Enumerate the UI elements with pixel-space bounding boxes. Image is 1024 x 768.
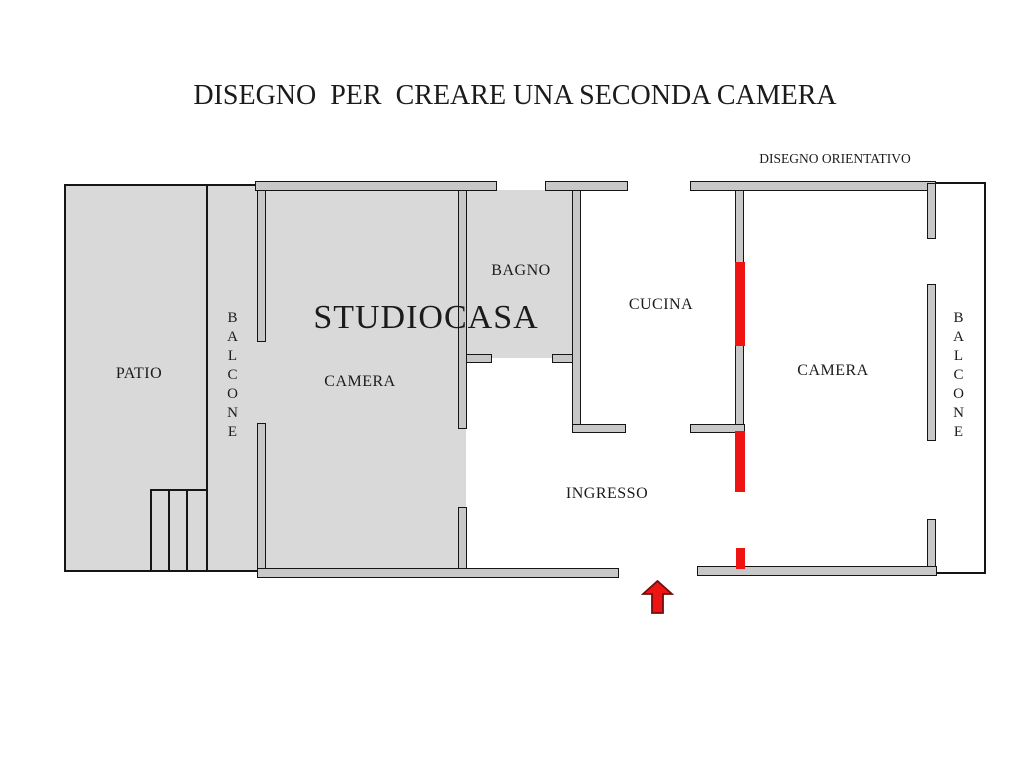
stairs-top-line [150, 489, 208, 491]
patio-outline-left [64, 184, 66, 572]
room-label-balcone-right: BALCONE [951, 310, 966, 443]
patio-outline-bottom [64, 570, 258, 572]
stairs-step-line [168, 489, 170, 572]
wall-bagno-bottom-left [466, 354, 492, 363]
plan-subtitle: DISEGNO ORIENTATIVO [759, 151, 911, 167]
wall-cucina-camera-middle [735, 344, 744, 428]
wall-right-middle [927, 284, 936, 441]
stairs-step-line [150, 489, 152, 572]
new-opening-marker-upper [735, 262, 745, 346]
balcone-right-outline-top [934, 182, 986, 184]
wall-cucina-left [572, 190, 581, 433]
balcone-right-outline-bottom [936, 572, 986, 574]
wall-bottom-left [257, 568, 619, 578]
room-label-ingresso: INGRESSO [566, 485, 648, 503]
wall-camera-ingresso-lower [458, 507, 467, 573]
wall-cucina-camera-upper [735, 190, 744, 264]
wall-cucina-foot [572, 424, 626, 433]
entrance-arrow-icon [641, 580, 674, 614]
wall-camera-left-upper [257, 190, 266, 342]
wall-camera-left-lower [257, 423, 266, 573]
patio-outline-top [64, 184, 258, 186]
new-opening-marker-middle [735, 431, 745, 492]
room-label-camera-left: CAMERA [324, 373, 395, 391]
room-label-cucina: CUCINA [629, 296, 693, 314]
floor-plan-page: DISEGNO PER CREARE UNA SECONDA CAMERA DI… [0, 0, 1024, 768]
wall-top-right [690, 181, 936, 191]
new-opening-marker-lower [736, 548, 745, 569]
room-label-patio: PATIO [116, 365, 162, 383]
room-label-bagno: BAGNO [491, 262, 550, 280]
wall-right-upper [927, 183, 936, 239]
stairs-step-line [186, 489, 188, 572]
wall-top-middle [545, 181, 628, 191]
page-title: DISEGNO PER CREARE UNA SECONDA CAMERA [193, 80, 836, 112]
patio-balcone-divider [206, 184, 208, 572]
room-label-camera-right: CAMERA [797, 362, 868, 380]
wall-bottom-right [697, 566, 937, 576]
balcone-right-outline-right [984, 182, 986, 574]
agency-watermark: STUDIOCASA [313, 299, 538, 337]
room-label-balcone-left: BALCONE [225, 310, 240, 443]
